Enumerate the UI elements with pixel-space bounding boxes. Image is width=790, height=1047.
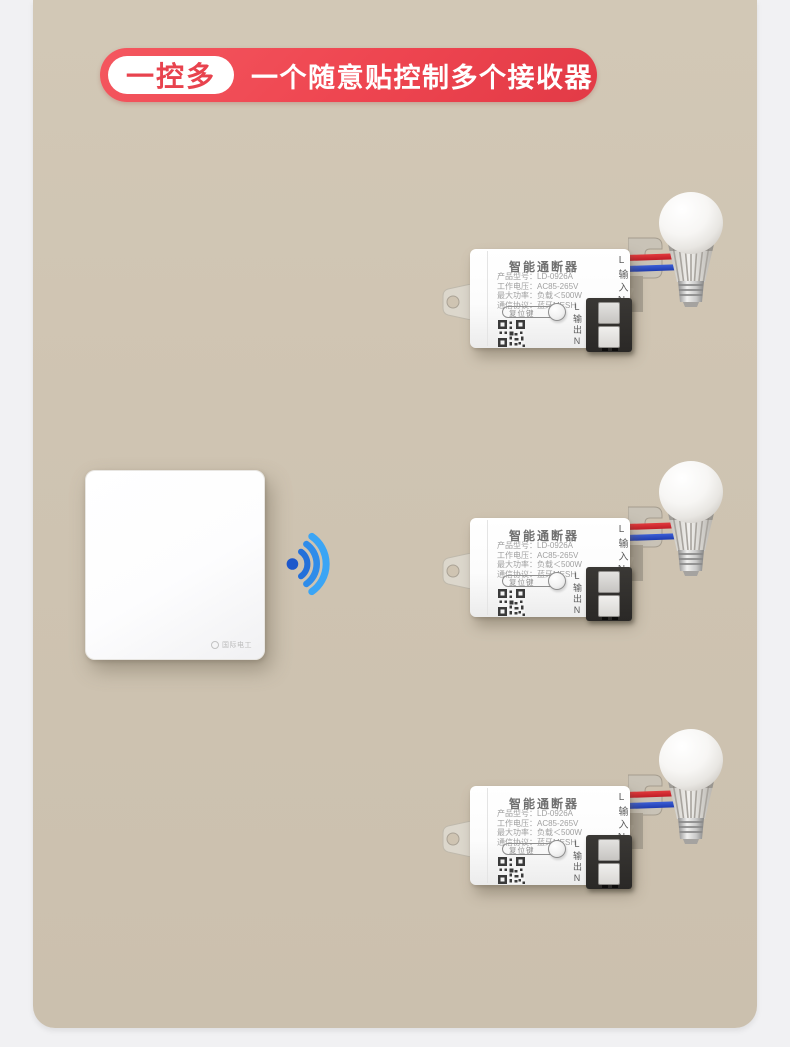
headline: 一个随意贴控制多个接收器 (251, 56, 593, 95)
qr-code-icon (498, 589, 525, 616)
wire-slot (602, 348, 608, 351)
qr-code-icon (498, 857, 525, 884)
wire-slot (612, 885, 618, 888)
receiver-module: 智能通断器 产品型号：LD-0926A 工作电压：AC85-265V 最大功率：… (470, 518, 630, 617)
output-terminal-label: L输出N (571, 571, 584, 617)
wall-switch-panel: 国际电工 (85, 470, 265, 660)
terminal-button-top (598, 571, 620, 593)
receiver-unit: 智能通断器 产品型号：LD-0926A 工作电压：AC85-265V 最大功率：… (440, 727, 750, 912)
content-card: 一控多 一个随意贴控制多个接收器 国际电工 (33, 0, 757, 1028)
reset-key-label: 复位键 (509, 845, 535, 856)
brand-logo: 国际电工 (211, 640, 252, 650)
output-terminal-label: L输出N (571, 302, 584, 348)
spec-line-power: 最大功率：负载＜500W (497, 828, 582, 838)
page: { "page": { "background_color": "#f1f1f3… (0, 0, 790, 1047)
reset-knob-icon (548, 572, 566, 590)
mounting-ear-icon (442, 821, 472, 857)
terminal-button-top (598, 302, 620, 324)
reset-knob-icon (548, 303, 566, 321)
wire-slot (602, 617, 608, 620)
badge-label-pill: 一控多 (108, 56, 234, 94)
wire-slot (612, 617, 618, 620)
spec-lines: 产品型号：LD-0926A 工作电压：AC85-265V 最大功率：负载＜500… (497, 272, 582, 310)
terminal-button-bottom (598, 595, 620, 617)
signal-icon (284, 531, 342, 597)
spec-line-voltage: 工作电压：AC85-265V (497, 282, 582, 292)
light-bulb-icon (652, 459, 730, 579)
feature-badge: 一控多 一个随意贴控制多个接收器 (100, 48, 597, 102)
reset-key: 复位键 (502, 843, 558, 855)
mounting-ear-icon (442, 553, 472, 589)
receiver-module: 智能通断器 产品型号：LD-0926A 工作电压：AC85-265V 最大功率：… (470, 786, 630, 885)
bulb-glass (659, 729, 723, 791)
reset-knob-icon (548, 840, 566, 858)
receiver-module: 智能通断器 产品型号：LD-0926A 工作电压：AC85-265V 最大功率：… (470, 249, 630, 348)
reset-key: 复位键 (502, 306, 558, 318)
wire-slot (602, 885, 608, 888)
spec-line-power: 最大功率：负载＜500W (497, 560, 582, 570)
terminal-block (586, 835, 632, 889)
brand-logo-text: 国际电工 (222, 640, 252, 650)
wire-slot (612, 348, 618, 351)
spec-line-model: 产品型号：LD-0926A (497, 541, 582, 551)
spec-line-model: 产品型号：LD-0926A (497, 272, 582, 282)
light-bulb-icon (652, 190, 730, 310)
spec-line-voltage: 工作电压：AC85-265V (497, 819, 582, 829)
receiver-unit: 智能通断器 产品型号：LD-0926A 工作电压：AC85-265V 最大功率：… (440, 459, 750, 644)
terminal-block (586, 567, 632, 621)
badge-label: 一控多 (126, 55, 216, 95)
output-terminal-label: L输出N (571, 839, 584, 885)
spec-line-voltage: 工作电压：AC85-265V (497, 551, 582, 561)
mounting-ear-icon (442, 284, 472, 320)
light-bulb-icon (652, 727, 730, 847)
qr-code-icon (498, 320, 525, 347)
terminal-button-top (598, 839, 620, 861)
spec-line-power: 最大功率：负载＜500W (497, 291, 582, 301)
reset-key-label: 复位键 (509, 308, 535, 319)
brand-logo-icon (211, 641, 219, 649)
spec-lines: 产品型号：LD-0926A 工作电压：AC85-265V 最大功率：负载＜500… (497, 541, 582, 579)
terminal-button-bottom (598, 863, 620, 885)
reset-key-label: 复位键 (509, 577, 535, 588)
spec-lines: 产品型号：LD-0926A 工作电压：AC85-265V 最大功率：负载＜500… (497, 809, 582, 847)
spec-line-model: 产品型号：LD-0926A (497, 809, 582, 819)
receiver-unit: 智能通断器 产品型号：LD-0926A 工作电压：AC85-265V 最大功率：… (440, 190, 750, 375)
bulb-glass (659, 461, 723, 523)
bulb-glass (659, 192, 723, 254)
terminal-block (586, 298, 632, 352)
reset-key: 复位键 (502, 575, 558, 587)
terminal-button-bottom (598, 326, 620, 348)
